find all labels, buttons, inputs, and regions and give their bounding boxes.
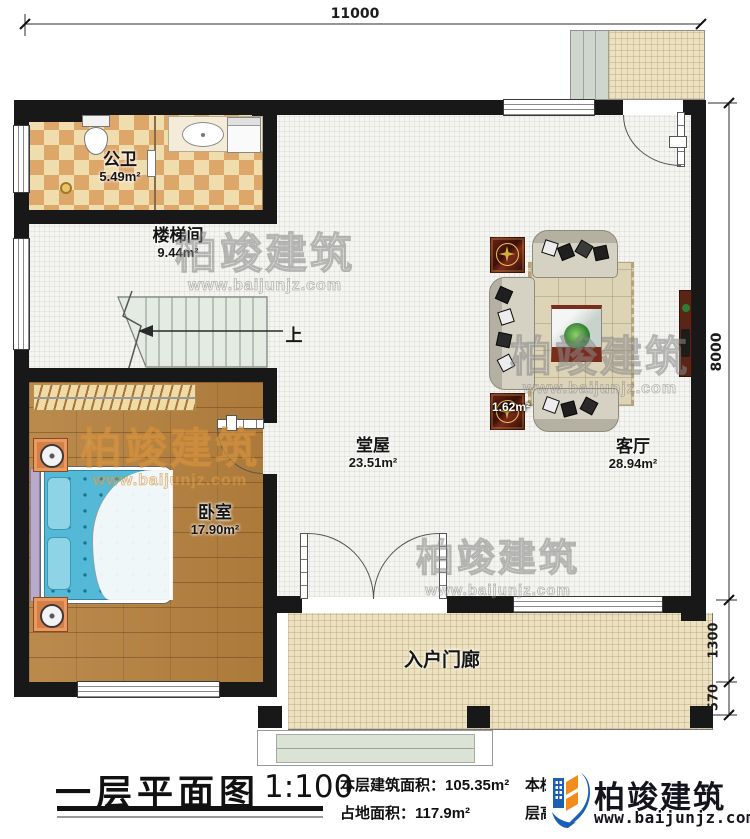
- room-label-bedroom: 卧室 17.90m²: [165, 503, 265, 537]
- nightstand: [33, 438, 68, 472]
- wall-corner-block: [681, 596, 706, 621]
- room-label-bathroom: 公卫 5.49m²: [70, 150, 170, 184]
- dim-height: 8000: [709, 322, 725, 382]
- porch-post: [467, 706, 490, 728]
- washing-machine: [227, 117, 261, 153]
- bathroom-partition: [154, 116, 156, 154]
- wall-segment: [595, 100, 623, 115]
- tv-cabinet: [679, 290, 692, 377]
- floor-area-label: 本层建筑面积：: [340, 777, 445, 794]
- wall-segment: [691, 100, 706, 612]
- room-label-porch: 入户门廊: [372, 645, 512, 672]
- logo-site: www.baijunjz.com: [594, 808, 750, 827]
- wall-segment: [447, 596, 513, 613]
- wall-segment: [14, 100, 29, 125]
- side-table: [490, 237, 525, 273]
- room-label-hall: 堂屋 23.51m²: [323, 436, 423, 470]
- land-area-label: 占地面积：: [340, 805, 415, 822]
- window: [513, 596, 663, 613]
- wardrobe: [33, 384, 196, 411]
- wall-segment: [220, 682, 277, 697]
- land-area-value: 117.9m²: [415, 805, 470, 822]
- plant: [564, 323, 590, 349]
- stair-up-label: 上: [283, 321, 305, 346]
- bed-headboard: [30, 468, 40, 602]
- land-area-row: 占地面积：117.9m²: [340, 802, 470, 823]
- dim-steps: 570: [707, 668, 722, 728]
- floor-plan-canvas: 公卫 5.49m² 楼梯间 9.44m² 卧室 17.90m² 堂屋 23.51…: [0, 0, 750, 839]
- window: [13, 125, 30, 193]
- sink: [182, 122, 224, 147]
- window: [503, 99, 595, 116]
- wall-segment: [263, 474, 277, 697]
- title-underline-thick: [57, 806, 323, 811]
- floor-area-value: 105.35m²: [445, 777, 509, 794]
- cabinet-plant: [682, 304, 690, 312]
- wall-segment: [277, 596, 302, 613]
- wall-segment: [14, 193, 29, 238]
- dim-width: 11000: [320, 6, 390, 22]
- wall-segment: [263, 100, 277, 224]
- logo: 柏竣建筑 www.baijunjz.com: [546, 766, 748, 832]
- toilet: [82, 115, 110, 127]
- wall-segment: [263, 368, 277, 423]
- wall-segment: [29, 210, 277, 224]
- nightstand-lamp: [40, 444, 64, 468]
- room-label-stair: 楼梯间 9.44m²: [128, 226, 228, 260]
- entry-door-leaf: [300, 533, 308, 599]
- nightstand: [33, 597, 68, 632]
- porch-post: [258, 706, 282, 728]
- title-underline-thin: [57, 816, 323, 818]
- room-label-living: 客厅 28.94m²: [583, 437, 683, 471]
- misc-area-label: 1.62m²: [478, 400, 544, 414]
- logo-icon: [548, 768, 592, 830]
- sofa-pillow: [496, 332, 513, 349]
- nightstand-lamp: [40, 604, 64, 628]
- pillow: [47, 477, 71, 530]
- entry-door-leaf: [439, 533, 447, 599]
- tv: [681, 329, 690, 357]
- wall-segment: [14, 368, 277, 382]
- window: [13, 238, 30, 350]
- sink-drain: [201, 133, 205, 137]
- wall-segment: [14, 350, 29, 697]
- sofa-pillow: [593, 245, 610, 262]
- washer-panel: [228, 118, 260, 126]
- window: [77, 681, 220, 698]
- wall-segment: [14, 682, 77, 697]
- pillow: [47, 537, 71, 590]
- floor-area-row: 本层建筑面积：105.35m²: [340, 774, 509, 795]
- dim-porch: 1300: [707, 611, 722, 671]
